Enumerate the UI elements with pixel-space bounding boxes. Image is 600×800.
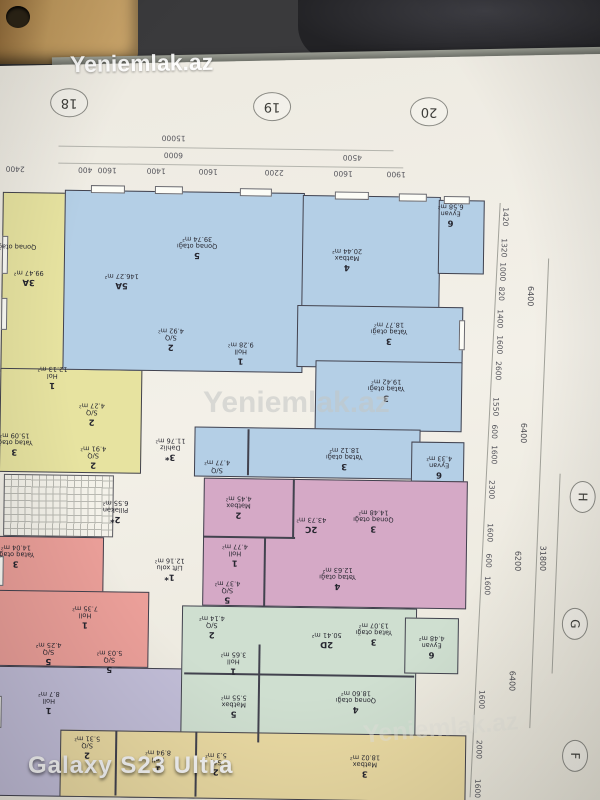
- room-label-ar: 4.91 m²: [80, 443, 106, 451]
- dimension-chain-top: 1400: [147, 166, 166, 175]
- room-label-nm: Qonaq otağı: [0, 242, 36, 250]
- dimension-line: [59, 146, 394, 152]
- dimension-chain-right: 600: [484, 553, 493, 567]
- window-mark: [459, 320, 465, 350]
- room-label-ar: 5.55 m²: [221, 692, 247, 700]
- room-label-no: 6: [426, 468, 452, 478]
- room-label-no: 2: [199, 628, 225, 638]
- room-label: 3Yataq otağı18.12 m²: [326, 445, 363, 470]
- room-label-ar: 18.77 m²: [371, 320, 408, 328]
- room-label-ar: 43.73 m²: [296, 515, 326, 523]
- window-mark: [399, 193, 427, 201]
- room-label-ar: 99.47 m²: [14, 268, 44, 276]
- room-label-ar: 4.48 m²: [419, 633, 445, 641]
- grid-bubble-top: 18: [50, 88, 88, 118]
- room-label-ar: 4.14 m²: [199, 613, 225, 621]
- room-label-ar: 4.33 m²: [426, 453, 452, 461]
- room-label-no: 3: [326, 460, 363, 470]
- room-label-ar: 4.77 m²: [222, 541, 248, 549]
- dimension-chain-top: 1600: [334, 169, 353, 178]
- room-label-ar: 6.58 m²: [438, 201, 464, 209]
- dimension-grand-total: 31800: [538, 546, 547, 572]
- room-label: 5Qonaq otağı39.74 m²: [177, 234, 218, 259]
- room-label: 6Eyvan4.33 m²: [426, 453, 452, 478]
- dimension-total-top: 15000: [162, 134, 186, 143]
- room-label: 5S/Q4.37 m²: [214, 578, 240, 603]
- window-mark: [1, 298, 7, 330]
- room-label-ar: 5.03 m²: [96, 648, 122, 656]
- dimension-chain-right: 1320: [500, 238, 509, 257]
- window-mark: [155, 186, 183, 194]
- room-label-no: 3*: [155, 451, 185, 461]
- grid-bubble-right: F: [562, 740, 588, 772]
- watermark-top: Yeniemlak.az: [70, 49, 214, 78]
- room-label: 6Eyvan6.58 m²: [438, 201, 464, 226]
- room-label-no: 1: [228, 355, 254, 365]
- room-label-ar: 13.07 m²: [355, 620, 392, 628]
- room-label-no: 3: [350, 767, 380, 777]
- room-label: 1Holl7.35 m²: [72, 603, 98, 628]
- room-label-ar: 4.37 m²: [214, 578, 240, 586]
- room-label-ar: 19.42 m²: [368, 376, 405, 384]
- room-label: 4Yataq otağı12.63 m²: [319, 565, 356, 590]
- room-label: 3Yataq otağı18.77 m²: [370, 320, 407, 345]
- dimension-chain-right: 2000: [475, 740, 484, 759]
- room-label-no: 4: [319, 580, 356, 590]
- window-mark: [91, 185, 125, 193]
- dimension-chain-top: 400: [78, 165, 92, 174]
- grid-bubble-right: G: [562, 608, 588, 640]
- dimension-line: [552, 474, 561, 674]
- room-label-no: 5: [177, 249, 218, 259]
- device-watermark: Galaxy S23 Ultra: [28, 752, 233, 780]
- room-label: 1Holl9.28 m²: [228, 340, 254, 365]
- dimension-chain-right: 1600: [495, 335, 504, 354]
- room-label-no: 5: [214, 594, 240, 604]
- room-label-ar: 8.7 m²: [38, 689, 60, 697]
- stairwell-region: [3, 474, 114, 538]
- room-label-no: 2*: [102, 513, 128, 523]
- window-mark: [335, 191, 369, 199]
- room-label: 2S/Q4.91 m²: [80, 443, 106, 468]
- dimension-chain-top: 2400: [6, 164, 25, 173]
- room-label-ar: 146.27 m²: [105, 272, 139, 280]
- dimension-chain-right: 1000: [498, 262, 507, 281]
- room-label: 3Yataq otağı13.07 m²: [355, 620, 392, 645]
- dimension-chain-top: 1600: [98, 166, 117, 175]
- room-label-ar: 12.63 m²: [319, 565, 356, 573]
- room-label-ar: 12.16 m²: [155, 556, 185, 564]
- dimension-chain-right: 600: [490, 424, 499, 438]
- room-label-no: 2D: [312, 638, 342, 648]
- room-label: 2C43.73 m²: [296, 515, 326, 533]
- room-label-ar: 3.65 m²: [220, 649, 246, 657]
- grid-bubble-top: 19: [253, 92, 291, 122]
- room-label-ar: 50.41 m²: [312, 631, 342, 639]
- room-label-no: 1: [220, 665, 246, 675]
- room-label: Qonaq otağı: [0, 242, 36, 250]
- room-label-ar: 14.04 m²: [0, 542, 34, 550]
- dimension-chain-right: 1400: [496, 309, 505, 328]
- room-label: 2*Pilləkən6.55 m²: [102, 498, 128, 523]
- grid-bubble-right: H: [569, 481, 595, 513]
- watermark-center: Yeniemlak.az: [203, 386, 390, 420]
- floorplan-photo: 5Qonaq otağı39.74 m²5A146.27 m²2S/Q4.92 …: [0, 0, 600, 800]
- room-label-ar: 12.13 m²: [37, 364, 67, 372]
- room-label-no: 2: [225, 509, 251, 519]
- room-label-no: 1: [38, 704, 60, 714]
- dimension-chain-right: 1600: [473, 779, 482, 798]
- room-label-nm: S/Q: [204, 466, 230, 474]
- room-label-ar: 39.74 m²: [177, 234, 218, 242]
- room-label-no: 2: [79, 416, 105, 426]
- room-label-ar: 15.09 m²: [0, 430, 33, 438]
- apartment-unit-region: [0, 590, 149, 668]
- room-label-no: 1: [72, 619, 98, 629]
- room-label-no: 3A: [14, 276, 44, 286]
- room-label: 2S/Q4.14 m²: [199, 613, 225, 638]
- room-label: 5A146.27 m²: [104, 272, 138, 290]
- room-label: 3A99.47 m²: [14, 268, 44, 286]
- room-label-ar: 18.02 m²: [350, 752, 380, 760]
- room-label: 6Eyvan4.48 m²: [418, 633, 444, 658]
- room-label-no: 5: [221, 708, 247, 718]
- dimension-chain-right: 1600: [483, 576, 492, 595]
- room-label-no: 3: [0, 557, 34, 567]
- room-label: 1Hol12.13 m²: [37, 364, 67, 389]
- room-label-no: 4: [332, 261, 362, 271]
- dimension-total-right: 6400: [507, 671, 516, 691]
- room-label-ar: 18.12 m²: [326, 445, 363, 453]
- room-label: 3Qonaq otağı14.48 m²: [353, 507, 394, 532]
- dimension-chain-right: 820: [497, 287, 506, 301]
- room-label: 5Mətbəx5.55 m²: [221, 692, 247, 717]
- room-label-no: 2: [80, 459, 106, 469]
- room-label: 2D50.41 m²: [312, 631, 342, 649]
- room-label-no: 2: [158, 341, 184, 351]
- room-label: 4Mətbəx20.44 m²: [332, 246, 362, 271]
- grid-bubble-top: 20: [410, 97, 448, 127]
- room-label-ar: 4.45 m²: [226, 494, 252, 502]
- room-label-no: 6: [438, 217, 464, 227]
- room-label: 1Holl4.77 m²: [222, 541, 248, 566]
- room-label-ar: 4.92 m²: [158, 326, 184, 334]
- room-label-ar: 6.55 m²: [103, 498, 129, 506]
- dimension-chain-right: 1420: [501, 207, 510, 226]
- room-label: S/Q4.77 m²: [204, 458, 230, 474]
- room-label: 5S/Q4.25 m²: [35, 640, 61, 665]
- room-label-no: 5: [96, 663, 122, 673]
- dimension-chain-right: 2600: [494, 361, 503, 380]
- room-label-no: 3: [370, 335, 407, 345]
- room-label: 3Mətbəx18.02 m²: [350, 752, 380, 777]
- dimension-chain-top: 1900: [387, 170, 406, 179]
- room-label-no: 2C: [296, 523, 326, 533]
- dimension-chain-top: 1600: [199, 167, 218, 176]
- room-label-ar: 11.76 m²: [155, 436, 185, 444]
- room-label: 4Qonaq otağı18.60 m²: [335, 688, 376, 713]
- apartment-unit-region: [0, 368, 142, 474]
- room-label-no: 4: [335, 703, 376, 713]
- room-label: 3Yataq otağı15.09 m²: [0, 430, 33, 455]
- room-label-ar: 18.60 m²: [336, 688, 377, 696]
- room-label-ar: 20.44 m²: [332, 246, 362, 254]
- room-label: 3Yataq otağı14.04 m²: [0, 542, 34, 567]
- room-label: 1Holl8.7 m²: [38, 689, 60, 714]
- room-label-ar: 4.25 m²: [36, 640, 62, 648]
- dimension-total-right: 6400: [526, 286, 535, 306]
- dimension-chain-right: 1550: [491, 397, 500, 416]
- dimension-chain-right: 2300: [487, 480, 496, 499]
- dimension-line: [529, 259, 549, 729]
- dimension-chain-right: 1600: [477, 690, 486, 709]
- room-label-ar: 4.77 m²: [204, 458, 230, 466]
- room-label-ar: 9.28 m²: [228, 340, 254, 348]
- apartment-unit-region: [301, 195, 441, 309]
- dimension-total-right: 6200: [513, 551, 522, 571]
- room-label-no: 1: [37, 379, 67, 389]
- window-mark: [240, 188, 272, 196]
- room-label: 1*Lift xolu12.16 m²: [154, 556, 184, 581]
- room-label: 2S/Q4.92 m²: [158, 326, 184, 351]
- room-label-ar: 4.27 m²: [79, 400, 105, 408]
- room-label: 1Holl3.65 m²: [220, 649, 246, 674]
- room-label-no: 5A: [104, 279, 138, 289]
- room-label-no: 1: [222, 557, 248, 567]
- dimension-chain-right: 1600: [486, 523, 495, 542]
- room-label-ar: 14.48 m²: [353, 507, 394, 515]
- room-label-no: 6: [418, 648, 444, 658]
- dimension-total-top: 6000: [164, 151, 183, 160]
- dimension-total-right: 6400: [519, 423, 528, 443]
- room-label-no: 5: [35, 655, 61, 665]
- room-label: 2Mətbəx4.45 m²: [225, 494, 251, 519]
- room-label-ar: 7.35 m²: [72, 603, 98, 611]
- dimension-chain-right: 1600: [490, 445, 499, 464]
- dimension-total-top: 4500: [343, 153, 362, 162]
- room-label-no: 3: [353, 522, 394, 532]
- room-label-no: 1*: [154, 571, 184, 581]
- room-label-no: 3: [0, 445, 33, 455]
- dimension-chain-top: 2200: [265, 168, 284, 177]
- room-label-no: 3: [355, 635, 392, 645]
- room-label: 3*Dəhliz11.76 m²: [155, 436, 185, 461]
- room-label: 2S/Q4.27 m²: [79, 400, 105, 425]
- room-label-ar: 5.31 m²: [74, 733, 100, 741]
- room-label: 5S/Q5.03 m²: [96, 648, 122, 673]
